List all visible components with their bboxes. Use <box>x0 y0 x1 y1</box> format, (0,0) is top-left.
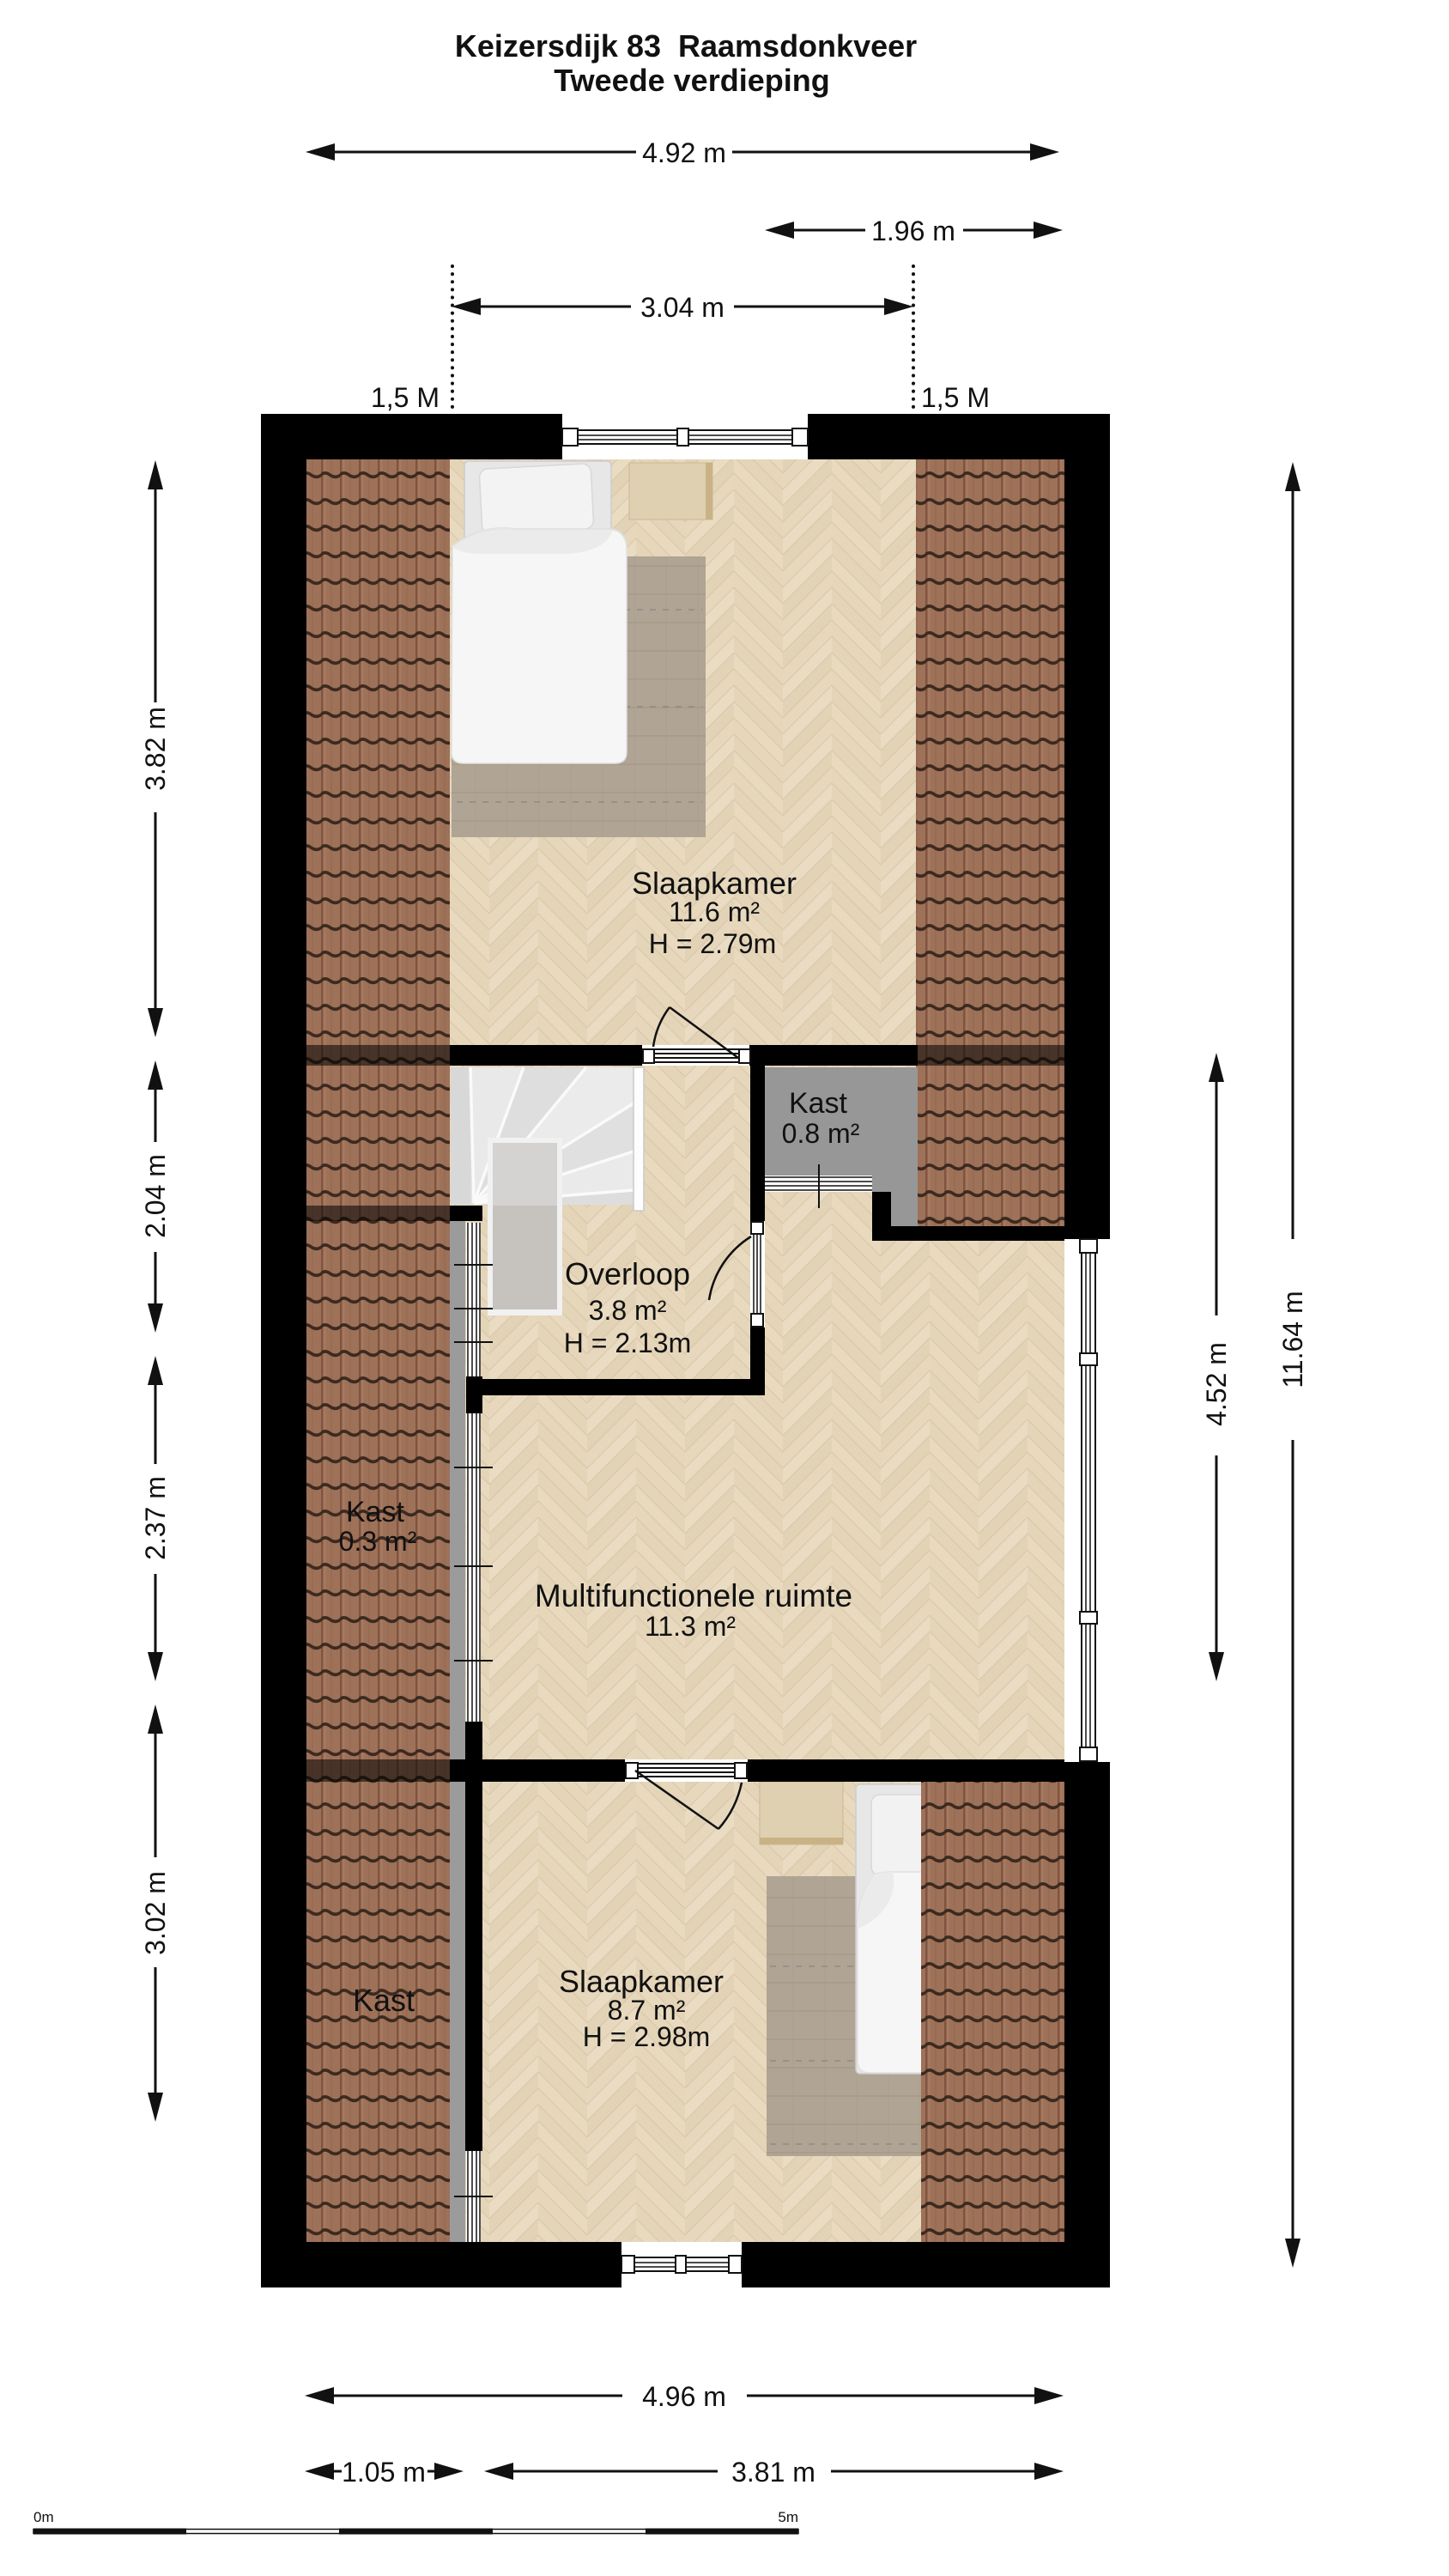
svg-text:2.37 m: 2.37 m <box>140 1476 171 1560</box>
svg-text:Kast: Kast <box>789 1087 848 1120</box>
svg-text:H = 2.98m: H = 2.98m <box>583 2021 711 2052</box>
svg-text:11.6 m²: 11.6 m² <box>669 896 760 927</box>
svg-text:Multifunctionele ruimte: Multifunctionele ruimte <box>535 1578 852 1613</box>
svg-text:11.64 m: 11.64 m <box>1277 1291 1308 1388</box>
svg-text:4.92 m: 4.92 m <box>642 137 726 168</box>
svg-text:1,5 M: 1,5 M <box>921 382 990 413</box>
svg-text:4.96 m: 4.96 m <box>642 2381 726 2412</box>
svg-text:Overloop: Overloop <box>565 1256 690 1291</box>
svg-text:3.8 m²: 3.8 m² <box>589 1295 667 1326</box>
svg-text:3.04 m: 3.04 m <box>640 292 724 323</box>
svg-text:3.81 m: 3.81 m <box>731 2457 815 2488</box>
svg-text:Keizersdijk 83 Raamsdonkveer: Keizersdijk 83 Raamsdonkveer <box>455 28 917 64</box>
svg-text:Tweede verdieping: Tweede verdieping <box>554 63 829 98</box>
svg-text:1.96 m: 1.96 m <box>871 216 955 246</box>
svg-text:4.52 m: 4.52 m <box>1201 1342 1232 1426</box>
svg-text:0.8 m²: 0.8 m² <box>782 1118 860 1149</box>
svg-text:Slaapkamer: Slaapkamer <box>559 1964 724 1999</box>
svg-text:3.02 m: 3.02 m <box>140 1871 171 1955</box>
svg-text:0.3 m²: 0.3 m² <box>339 1526 417 1557</box>
svg-text:1,5 M: 1,5 M <box>371 382 440 413</box>
svg-text:5m: 5m <box>778 2509 798 2525</box>
svg-text:Kast: Kast <box>346 1496 405 1528</box>
svg-text:3.82 m: 3.82 m <box>140 707 171 791</box>
svg-text:Slaapkamer: Slaapkamer <box>632 866 797 901</box>
svg-text:2.04 m: 2.04 m <box>140 1154 171 1238</box>
svg-text:11.3 m²: 11.3 m² <box>645 1611 736 1642</box>
svg-text:Kast: Kast <box>353 1983 415 2018</box>
svg-text:H = 2.79m: H = 2.79m <box>649 928 777 959</box>
svg-text:0m: 0m <box>33 2509 54 2525</box>
svg-text:1.05 m: 1.05 m <box>342 2457 426 2488</box>
svg-text:H = 2.13m: H = 2.13m <box>564 1327 692 1358</box>
